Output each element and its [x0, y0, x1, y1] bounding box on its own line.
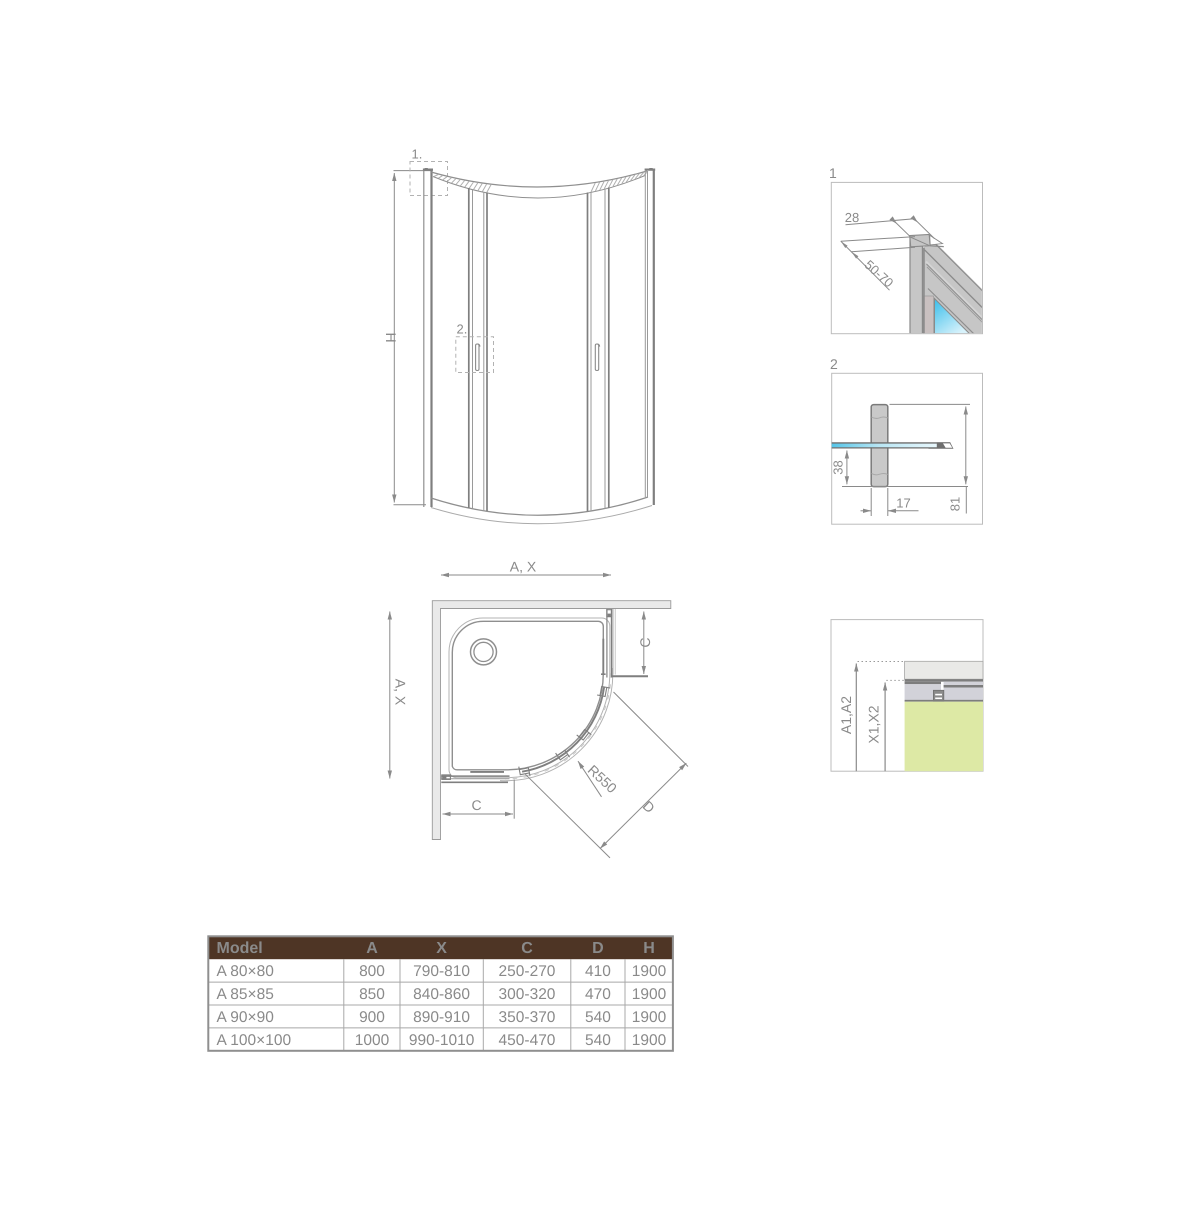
svg-text:C: C	[637, 637, 653, 647]
svg-text:800: 800	[359, 963, 385, 980]
svg-text:81: 81	[948, 497, 963, 511]
svg-text:Model: Model	[217, 940, 263, 957]
svg-text:2: 2	[830, 356, 838, 372]
svg-text:C: C	[471, 797, 481, 813]
svg-text:470: 470	[585, 986, 611, 1003]
svg-text:A 80×80: A 80×80	[217, 963, 275, 980]
svg-text:X: X	[436, 940, 447, 957]
svg-text:850: 850	[359, 986, 385, 1003]
svg-text:410: 410	[585, 963, 611, 980]
svg-text:990-1010: 990-1010	[409, 1032, 475, 1049]
svg-text:1900: 1900	[632, 1009, 667, 1026]
svg-text:450-470: 450-470	[499, 1032, 556, 1049]
svg-text:1900: 1900	[632, 1032, 667, 1049]
svg-text:A 90×90: A 90×90	[217, 1009, 275, 1026]
svg-text:A 85×85: A 85×85	[217, 986, 274, 1003]
svg-text:1: 1	[829, 165, 837, 181]
svg-text:540: 540	[585, 1009, 611, 1026]
svg-text:C: C	[521, 940, 533, 957]
svg-text:38: 38	[831, 460, 846, 474]
svg-text:1900: 1900	[632, 986, 667, 1003]
svg-text:A1,A2: A1,A2	[838, 696, 854, 734]
svg-text:350-370: 350-370	[499, 1009, 556, 1026]
svg-text:2.: 2.	[457, 322, 468, 337]
svg-text:A, X: A, X	[392, 679, 408, 706]
svg-text:H: H	[383, 332, 399, 342]
svg-text:17: 17	[896, 496, 910, 511]
svg-text:A: A	[366, 940, 378, 957]
svg-text:D: D	[592, 940, 604, 957]
svg-text:900: 900	[359, 1009, 385, 1026]
svg-text:890-910: 890-910	[413, 1009, 470, 1026]
svg-text:A 100×100: A 100×100	[217, 1032, 292, 1049]
svg-text:1900: 1900	[632, 963, 667, 980]
svg-text:1000: 1000	[355, 1032, 390, 1049]
svg-text:840-860: 840-860	[413, 986, 470, 1003]
svg-text:X1,X2: X1,X2	[866, 705, 882, 743]
svg-text:250-270: 250-270	[499, 963, 556, 980]
svg-text:540: 540	[585, 1032, 611, 1049]
svg-text:790-810: 790-810	[413, 963, 470, 980]
svg-text:300-320: 300-320	[499, 986, 556, 1003]
svg-text:28: 28	[845, 210, 859, 225]
svg-text:A, X: A, X	[510, 559, 537, 575]
svg-text:H: H	[643, 940, 655, 957]
svg-text:1.: 1.	[412, 147, 423, 162]
